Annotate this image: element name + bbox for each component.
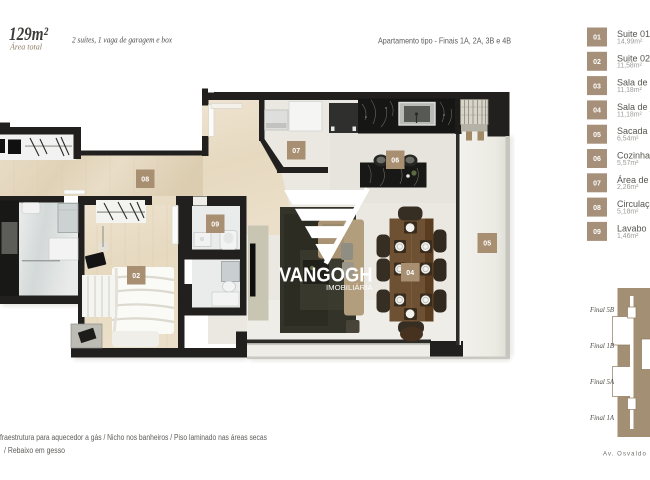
svg-text:11,18m²: 11,18m²	[617, 87, 642, 94]
svg-text:06: 06	[391, 157, 399, 164]
svg-text:6,54m²: 6,54m²	[617, 136, 639, 143]
svg-text:5,57m²: 5,57m²	[617, 160, 639, 167]
svg-text:Área total: Área total	[9, 42, 43, 52]
svg-text:07: 07	[593, 181, 601, 188]
svg-text:Final 5B: Final 5B	[589, 307, 614, 314]
svg-text:1,46m²: 1,46m²	[617, 233, 639, 240]
svg-text:05: 05	[593, 132, 601, 139]
svg-text:2,26m²: 2,26m²	[617, 184, 639, 191]
svg-text:04: 04	[593, 108, 601, 115]
svg-text:01: 01	[593, 35, 601, 42]
svg-text:Final 1B: Final 1B	[589, 343, 614, 350]
svg-text:VANGOGH: VANGOGH	[279, 265, 373, 287]
svg-text:08: 08	[593, 205, 601, 212]
svg-text:04: 04	[406, 270, 414, 277]
svg-text:08: 08	[141, 176, 149, 183]
svg-text:09: 09	[211, 221, 219, 228]
svg-text:11,58m²: 11,58m²	[617, 63, 642, 70]
svg-text:02: 02	[593, 59, 601, 66]
svg-text:Final 1A: Final 1A	[589, 415, 615, 422]
svg-text:Av. Osvaldo Re: Av. Osvaldo Re	[603, 452, 650, 458]
svg-text:Final 5A: Final 5A	[589, 379, 615, 386]
svg-text:/ Rebaixo em gesso: / Rebaixo em gesso	[4, 446, 66, 455]
svg-text:02: 02	[132, 273, 140, 280]
svg-text:06: 06	[593, 156, 601, 163]
svg-text:09: 09	[593, 229, 601, 236]
svg-text:fraestrutura para aquecedor a: fraestrutura para aquecedor a gás / Nich…	[0, 433, 267, 442]
svg-text:07: 07	[292, 148, 300, 155]
svg-text:2 suítes, 1 vaga de garagem e: 2 suítes, 1 vaga de garagem e box	[72, 35, 172, 45]
svg-text:IMOBILIÁRIA: IMOBILIÁRIA	[326, 283, 373, 292]
svg-text:05: 05	[483, 241, 491, 248]
svg-text:11,18m²: 11,18m²	[617, 111, 642, 118]
svg-text:5,18m²: 5,18m²	[617, 209, 639, 216]
svg-text:Apartamento tipo - Finais 1A,: Apartamento tipo - Finais 1A, 2A, 3B e 4…	[378, 37, 511, 46]
svg-text:03: 03	[593, 83, 601, 90]
svg-text:14,99m²: 14,99m²	[617, 38, 643, 45]
